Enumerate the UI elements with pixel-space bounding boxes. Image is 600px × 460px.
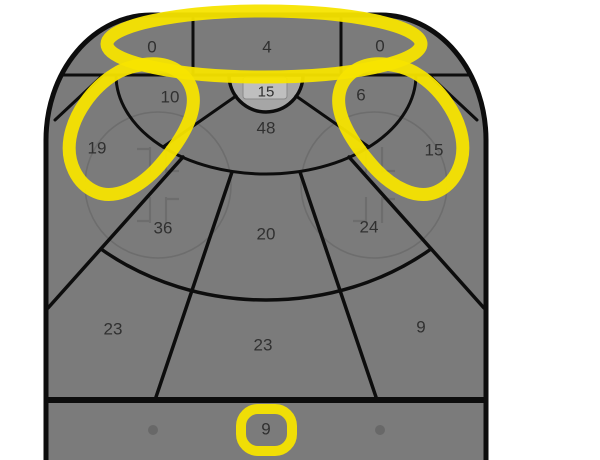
zone-value-behind-goal-center: 4 [262,38,271,57]
shot-zone-chart: 0 4 0 15 10 48 6 19 15 36 20 24 23 23 9 … [0,0,600,460]
zone-value-outer-center: 23 [254,336,273,355]
rink-svg: 0 4 0 15 10 48 6 19 15 36 20 24 23 23 9 … [0,0,600,460]
faceoff-dot-left [148,425,158,435]
zone-value-outer-right: 9 [416,318,425,337]
zone-value-inner-left: 10 [161,88,180,107]
zone-value-crease: 15 [258,84,275,101]
zone-value-mid-left: 36 [154,219,173,238]
zone-value-right-faceoff: 15 [425,141,444,160]
faceoff-dot-right [375,425,385,435]
zone-value-behind-goal-right: 0 [375,37,384,56]
zone-value-mid-right: 24 [360,218,379,237]
zone-value-mid-center: 20 [257,225,276,244]
zone-value-outer-left: 23 [104,320,123,339]
zone-value-beyond-blue-line: 9 [261,420,270,439]
zone-value-slot: 48 [257,119,276,138]
zone-value-inner-right: 6 [356,86,365,105]
zone-value-behind-goal-left: 0 [147,38,156,57]
zone-value-left-faceoff: 19 [88,139,107,158]
